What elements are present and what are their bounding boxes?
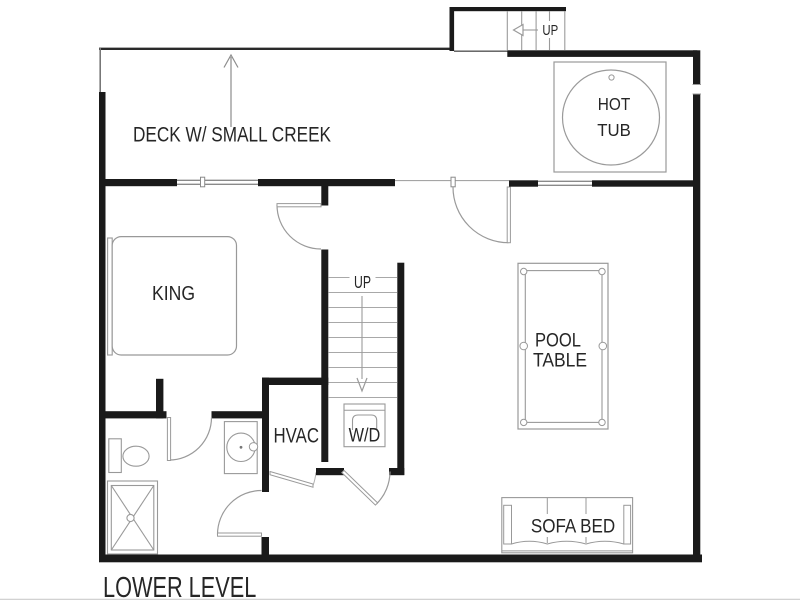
svg-text:LOWER LEVEL: LOWER LEVEL	[103, 572, 256, 600]
svg-text:W/D: W/D	[349, 426, 381, 447]
svg-text:KING: KING	[152, 283, 195, 305]
svg-text:SOFA BED: SOFA BED	[531, 517, 615, 538]
svg-text:HOT: HOT	[598, 94, 631, 114]
svg-text:TABLE: TABLE	[533, 350, 587, 371]
svg-text:TUB: TUB	[597, 120, 631, 140]
svg-text:DECK W/ SMALL CREEK: DECK W/ SMALL CREEK	[133, 124, 331, 147]
svg-text:UP: UP	[354, 272, 371, 292]
svg-text:HVAC: HVAC	[274, 424, 320, 447]
svg-text:UP: UP	[542, 23, 558, 39]
svg-text:POOL: POOL	[535, 331, 581, 352]
